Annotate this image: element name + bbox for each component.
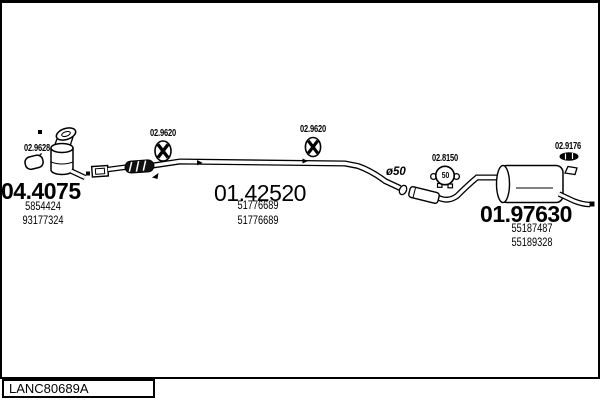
gasket-icon [24, 153, 45, 170]
marker-square [38, 130, 42, 134]
front-catalyst-ref: 5854424 [9, 202, 78, 214]
pipe-diameter-label: ø50 [386, 167, 406, 179]
centre-pipe-ref: 51776689 [218, 216, 298, 228]
catalog-reference-code: LANC80689A [9, 382, 89, 395]
rear-silencer-ref: 55187487 [492, 224, 572, 236]
sleeve-connector [408, 186, 440, 204]
catalog-reference-box: LANC80689A [2, 379, 155, 398]
clamp-label: 02.8150 [426, 154, 464, 164]
catalog-page: 02.9628 02.9620 02.9620 02.8150 02.9176 … [0, 0, 600, 400]
centre-pipe-ref: 51776689 [218, 201, 298, 213]
hanger-front-label: 02.9620 [144, 129, 182, 139]
silencer-bracket [565, 167, 577, 175]
rubber-mount-icon [560, 152, 579, 161]
flex-coupling [125, 159, 155, 173]
mount-rear-label: 02.9176 [549, 142, 587, 152]
front-catalyst-code: 04.4075 [1, 180, 81, 203]
hanger-mid-label: 02.9620 [294, 125, 332, 135]
marker-square [590, 202, 595, 207]
flange-connector [92, 165, 109, 177]
gasket-label: 02.9628 [18, 144, 56, 154]
rear-silencer-ref: 55189328 [492, 238, 572, 250]
rubber-hanger-icon [155, 141, 171, 161]
front-catalyst-ref: 93177324 [9, 216, 78, 228]
clamp-size-label: 50 [439, 172, 452, 180]
rubber-hanger-icon [305, 138, 320, 157]
marker-square [86, 172, 90, 176]
